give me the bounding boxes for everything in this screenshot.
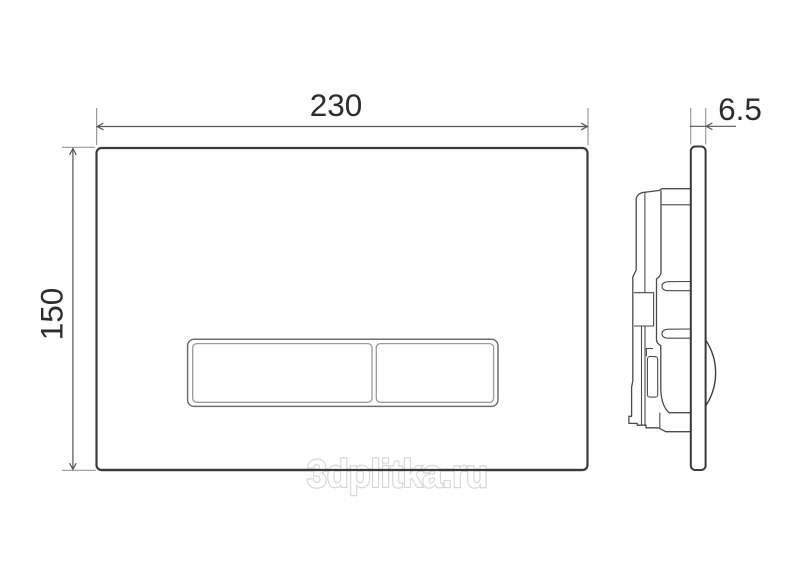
svg-text:150: 150 [34,288,70,341]
svg-text:3dplitka.ru: 3dplitka.ru [307,453,488,496]
svg-text:230: 230 [310,87,363,123]
svg-text:6.5: 6.5 [718,91,762,127]
